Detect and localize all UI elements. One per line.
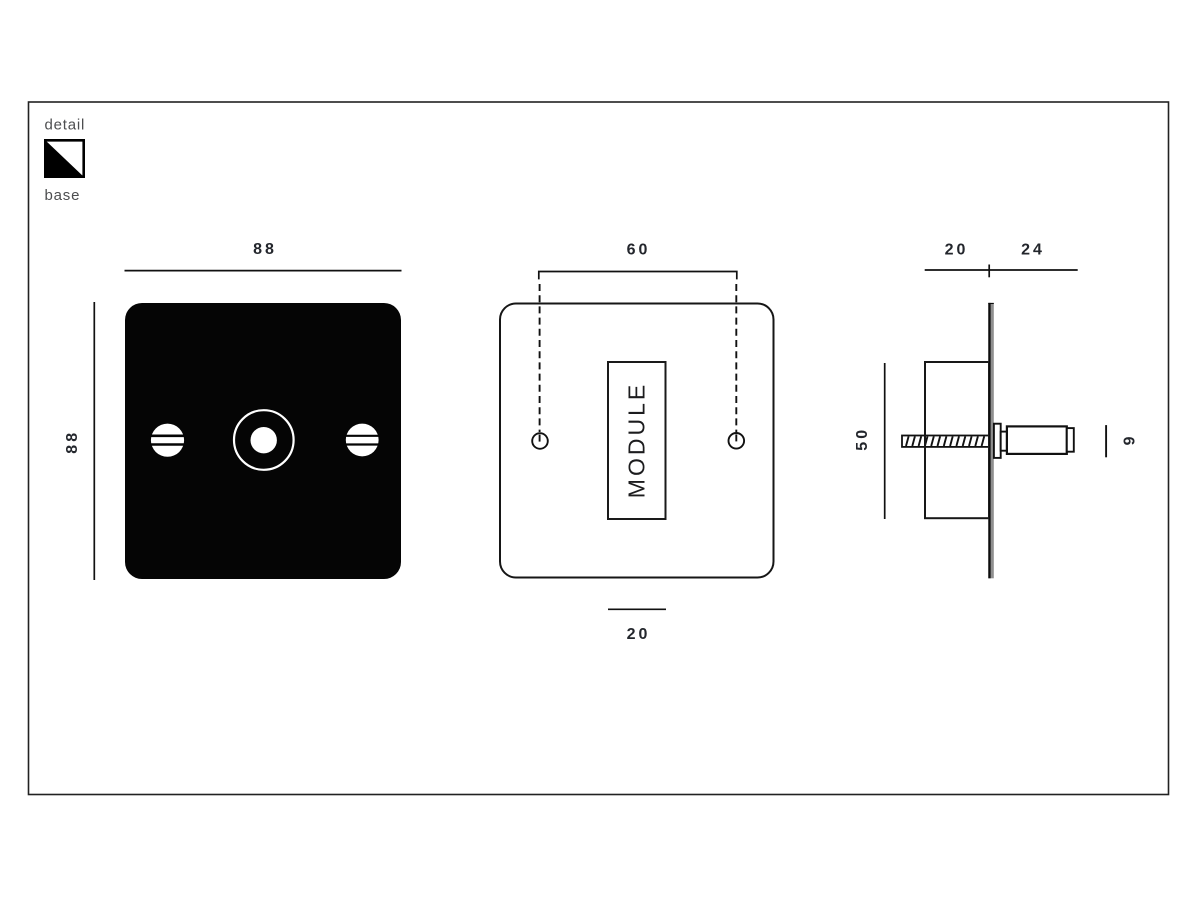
svg-text:MODULE: MODULE xyxy=(624,382,650,498)
svg-text:50: 50 xyxy=(854,427,871,451)
svg-text:24: 24 xyxy=(1021,242,1045,259)
svg-text:detail: detail xyxy=(45,117,86,134)
svg-text:base: base xyxy=(45,187,81,204)
svg-text:88: 88 xyxy=(64,430,81,454)
svg-text:20: 20 xyxy=(945,242,969,259)
svg-text:88: 88 xyxy=(253,241,277,258)
svg-text:20: 20 xyxy=(627,626,651,643)
svg-text:6: 6 xyxy=(1120,437,1137,449)
svg-text:60: 60 xyxy=(627,242,651,259)
